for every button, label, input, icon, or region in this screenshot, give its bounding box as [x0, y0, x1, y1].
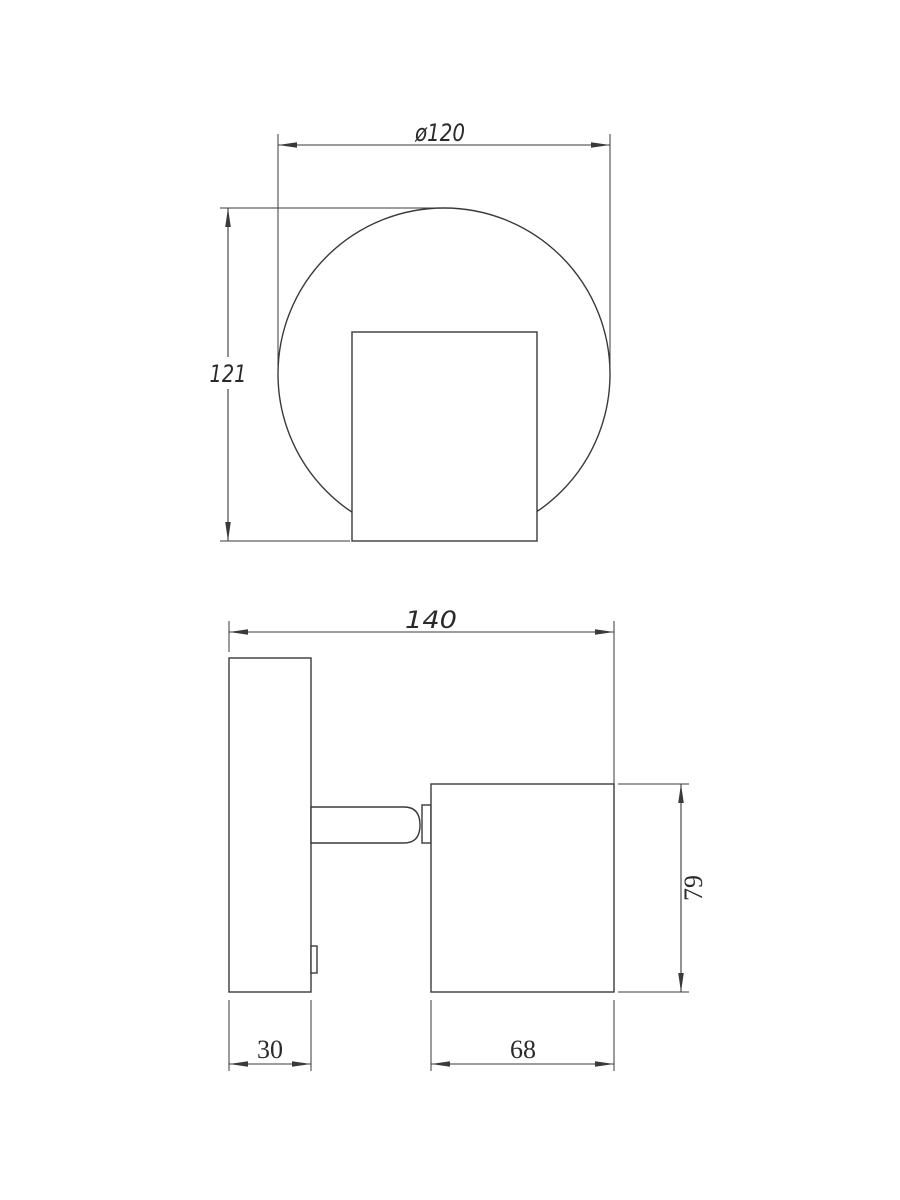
plate-depth-label: 30: [257, 1035, 283, 1064]
overall-width-label: 140: [405, 606, 457, 634]
head-depth-label: 68: [510, 1035, 536, 1064]
overall-height-label: 121: [210, 360, 247, 388]
swivel-joint: [422, 805, 431, 843]
diameter-label: ø120: [414, 119, 465, 147]
switch-knob: [311, 946, 317, 973]
dimension-plate-depth: 30: [229, 1000, 311, 1071]
dimension-head-height: 79: [618, 784, 708, 992]
dimension-head-depth: 68: [431, 1000, 614, 1071]
front-view: ø120 121: [210, 119, 611, 541]
wall-plate-rect: [229, 658, 311, 992]
arm-shape: [311, 807, 420, 843]
technical-drawing: ø120 121 140: [0, 0, 900, 1200]
lamp-head-front-rect: [352, 332, 537, 541]
head-height-label: 79: [679, 875, 708, 901]
side-view: 140 79 30 68: [229, 606, 708, 1071]
lamp-head-side-rect: [431, 784, 614, 992]
drawing-canvas: ø120 121 140: [0, 0, 900, 1200]
